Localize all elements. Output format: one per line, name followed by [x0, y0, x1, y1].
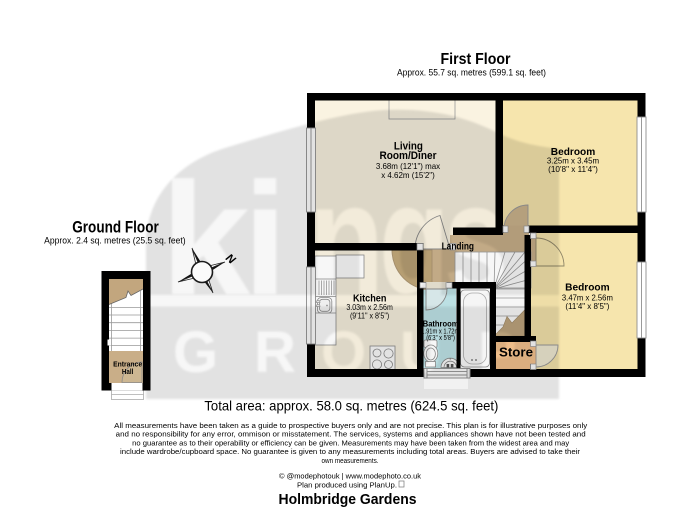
- svg-text:G: G: [173, 320, 218, 385]
- svg-text:First Floor: First Floor: [441, 51, 511, 68]
- svg-text:Approx. 2.4 sq. metres (25.5 s: Approx. 2.4 sq. metres (25.5 sq. feet): [44, 236, 186, 247]
- svg-text:R: R: [254, 320, 296, 385]
- svg-text:Ground Floor: Ground Floor: [72, 218, 159, 237]
- svg-text:Plan produced using PlanUp.: Plan produced using PlanUp.: [297, 481, 397, 490]
- svg-text:and no responsibility for any: and no responsibility for any error, omm…: [116, 432, 586, 439]
- svg-text:Bathroom: Bathroom: [423, 319, 459, 328]
- svg-text:Approx. 55.7 sq. metres (599.1: Approx. 55.7 sq. metres (599.1 sq. feet): [397, 68, 546, 79]
- svg-text:(11'4" x 8'5"): (11'4" x 8'5"): [565, 301, 609, 311]
- svg-text:Landing: Landing: [442, 242, 474, 253]
- svg-text:(10'8" x 11'4"): (10'8" x 11'4"): [548, 164, 598, 174]
- svg-text:Store: Store: [499, 345, 533, 360]
- svg-text:Hall: Hall: [122, 367, 134, 376]
- svg-text:All measurements have been tak: All measurements have been taken as a gu…: [114, 423, 588, 430]
- svg-text:x 4.62m (15'2"): x 4.62m (15'2"): [381, 170, 435, 180]
- svg-text:Total area: approx. 58.0 sq. m: Total area: approx. 58.0 sq. metres (624…: [204, 398, 498, 414]
- svg-text:no guarantee as to their opera: no guarantee as to their operability or …: [132, 440, 570, 447]
- svg-text:Holmbridge Gardens: Holmbridge Gardens: [279, 492, 417, 508]
- svg-text:© @modephotouk | www.modephoto: © @modephotouk | www.modephoto.co.uk: [279, 472, 421, 481]
- svg-text:(9'11" x 8'5"): (9'11" x 8'5"): [350, 311, 389, 321]
- svg-text:include wardrobe/cupboard spac: include wardrobe/cupboard space. No guar…: [120, 449, 581, 456]
- svg-text:O: O: [321, 320, 366, 385]
- svg-text:own measurements.: own measurements.: [322, 458, 379, 465]
- svg-text:(6'3" x 5'8"): (6'3" x 5'8"): [426, 335, 455, 342]
